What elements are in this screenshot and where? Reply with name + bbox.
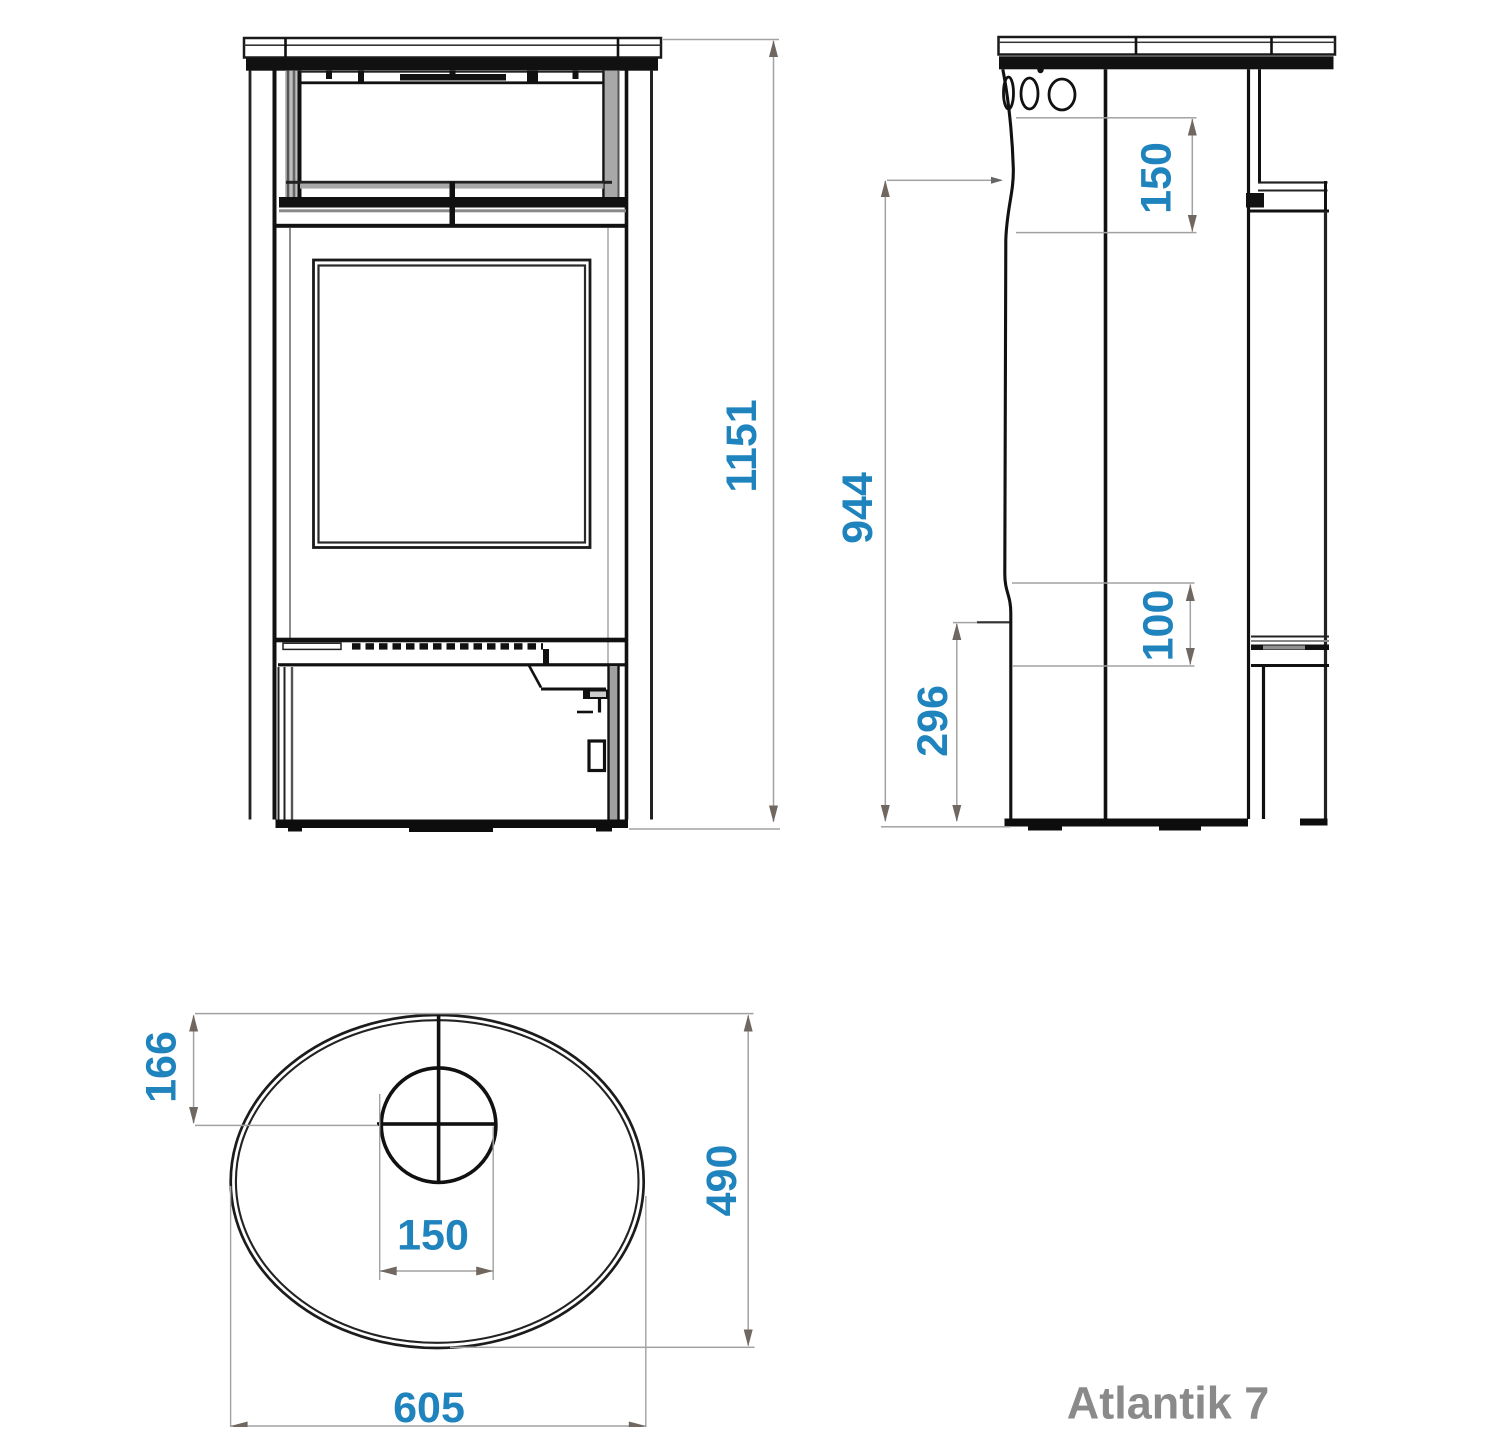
svg-text:296: 296 [909, 685, 957, 757]
svg-text:150: 150 [397, 1212, 469, 1260]
svg-text:150: 150 [1133, 142, 1181, 214]
svg-text:1151: 1151 [718, 399, 766, 492]
svg-text:100: 100 [1135, 590, 1183, 662]
svg-text:166: 166 [138, 1031, 186, 1103]
svg-text:944: 944 [834, 472, 882, 544]
svg-text:605: 605 [393, 1384, 465, 1427]
svg-text:Atlantik 7: Atlantik 7 [1067, 1378, 1270, 1428]
svg-text:490: 490 [698, 1145, 746, 1217]
